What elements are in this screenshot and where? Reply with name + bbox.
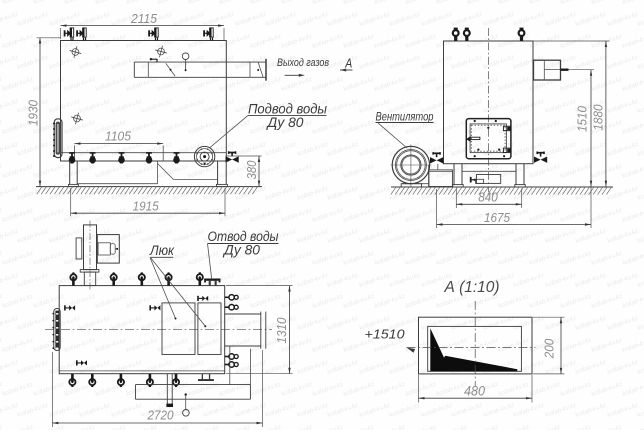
svg-text:380: 380 [244, 160, 259, 180]
svg-text:1310: 1310 [274, 317, 289, 344]
svg-text:200: 200 [542, 338, 557, 359]
svg-text:Выход газов: Выход газов [277, 57, 329, 69]
svg-text:1105: 1105 [105, 129, 132, 144]
svg-text:+1510: +1510 [365, 328, 405, 342]
svg-text:А (1:10): А (1:10) [444, 279, 500, 296]
svg-text:А: А [344, 57, 352, 71]
svg-text:Люк: Люк [149, 242, 175, 258]
svg-text:1880: 1880 [591, 104, 606, 131]
svg-text:480: 480 [464, 382, 485, 398]
svg-text:Ду 80: Ду 80 [265, 115, 304, 130]
svg-text:1915: 1915 [133, 198, 160, 213]
svg-text:840: 840 [478, 190, 498, 205]
svg-text:1930: 1930 [25, 99, 40, 126]
svg-text:1675: 1675 [484, 210, 511, 225]
svg-text:1510: 1510 [575, 105, 590, 132]
svg-text:2115: 2115 [130, 11, 158, 26]
svg-text:Вентилятор: Вентилятор [376, 111, 434, 123]
svg-text:2720: 2720 [147, 408, 175, 423]
